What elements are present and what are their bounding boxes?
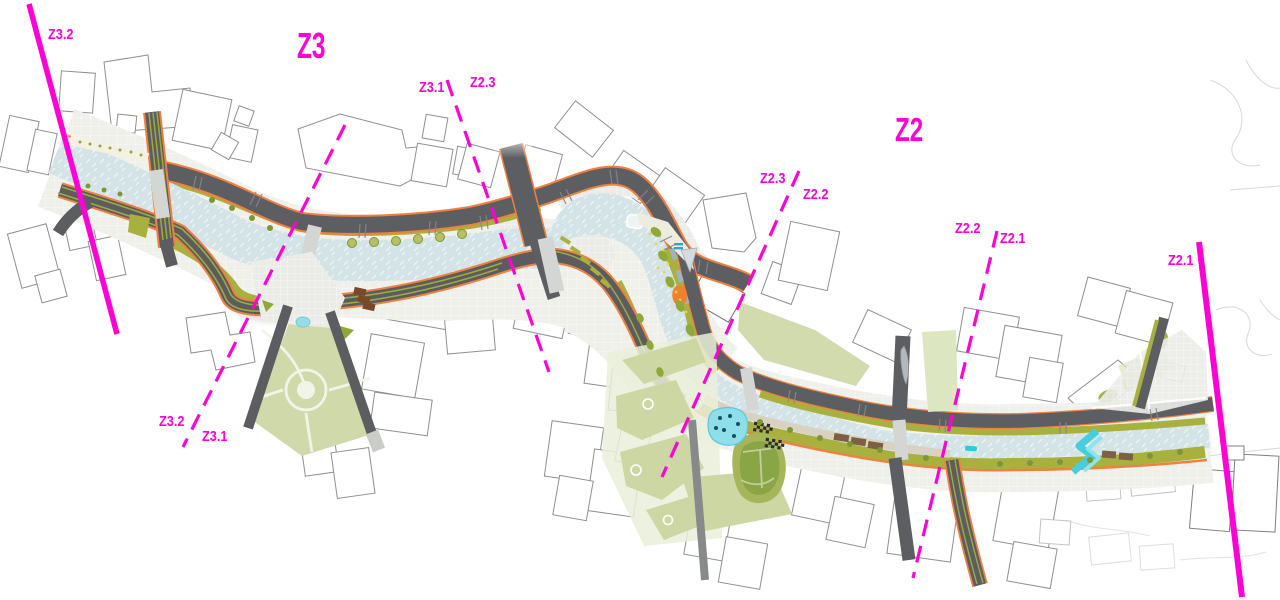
svg-text:Z2.2: Z2.2	[803, 185, 829, 202]
svg-text:Z2.3: Z2.3	[760, 169, 786, 186]
svg-text:Z2.1: Z2.1	[1168, 251, 1194, 268]
svg-text:Z3.2: Z3.2	[159, 412, 185, 429]
svg-text:Z3.1: Z3.1	[202, 427, 228, 444]
svg-text:Z2.1: Z2.1	[1000, 229, 1026, 246]
svg-text:Z2: Z2	[895, 112, 923, 149]
svg-text:Z3: Z3	[297, 25, 326, 66]
svg-text:Z3.2: Z3.2	[48, 25, 74, 42]
svg-text:Z3.1: Z3.1	[419, 78, 445, 95]
svg-text:Z2.2: Z2.2	[955, 219, 981, 236]
svg-text:Z2.3: Z2.3	[470, 73, 496, 90]
